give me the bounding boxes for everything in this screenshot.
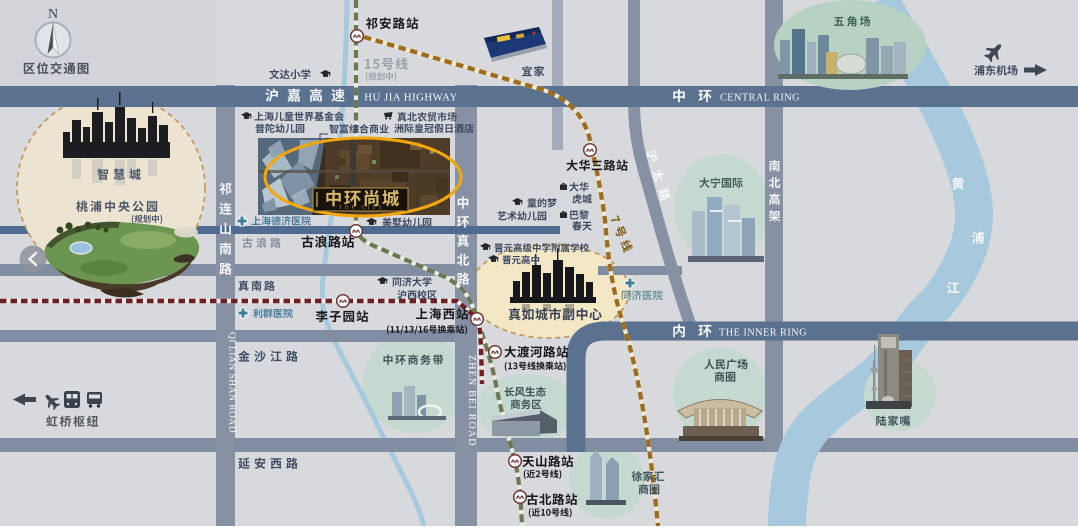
svg-text:TOP CITY: TOP CITY <box>339 206 385 211</box>
svg-text:THE INNER RING: THE INNER RING <box>719 328 807 339</box>
svg-text:N: N <box>48 7 58 22</box>
svg-text:QI LIAN SHAN ROAD: QI LIAN SHAN ROAD <box>227 332 237 433</box>
svg-text:HU JIA HIGHWAY: HU JIA HIGHWAY <box>364 92 458 104</box>
svg-text:ZHEN BEI ROAD: ZHEN BEI ROAD <box>466 355 477 447</box>
svg-text:CENTRAL RING: CENTRAL RING <box>720 93 800 104</box>
